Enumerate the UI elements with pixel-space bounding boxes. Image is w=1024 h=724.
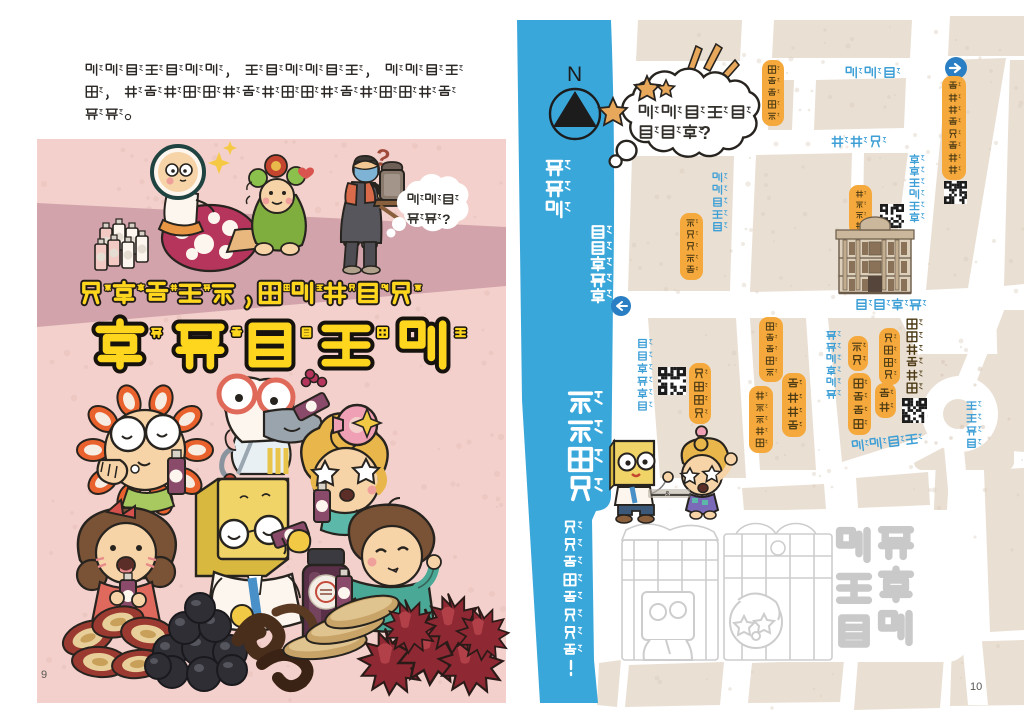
svg-text:10: 10: [970, 681, 982, 693]
svg-text:9: 9: [41, 669, 47, 681]
svg-text:N: N: [567, 63, 582, 86]
svg-text:▬▬&▬▬▬: ▬▬&▬▬▬: [651, 491, 691, 498]
svg-text:?: ?: [700, 123, 711, 143]
svg-text:?: ?: [442, 211, 451, 227]
